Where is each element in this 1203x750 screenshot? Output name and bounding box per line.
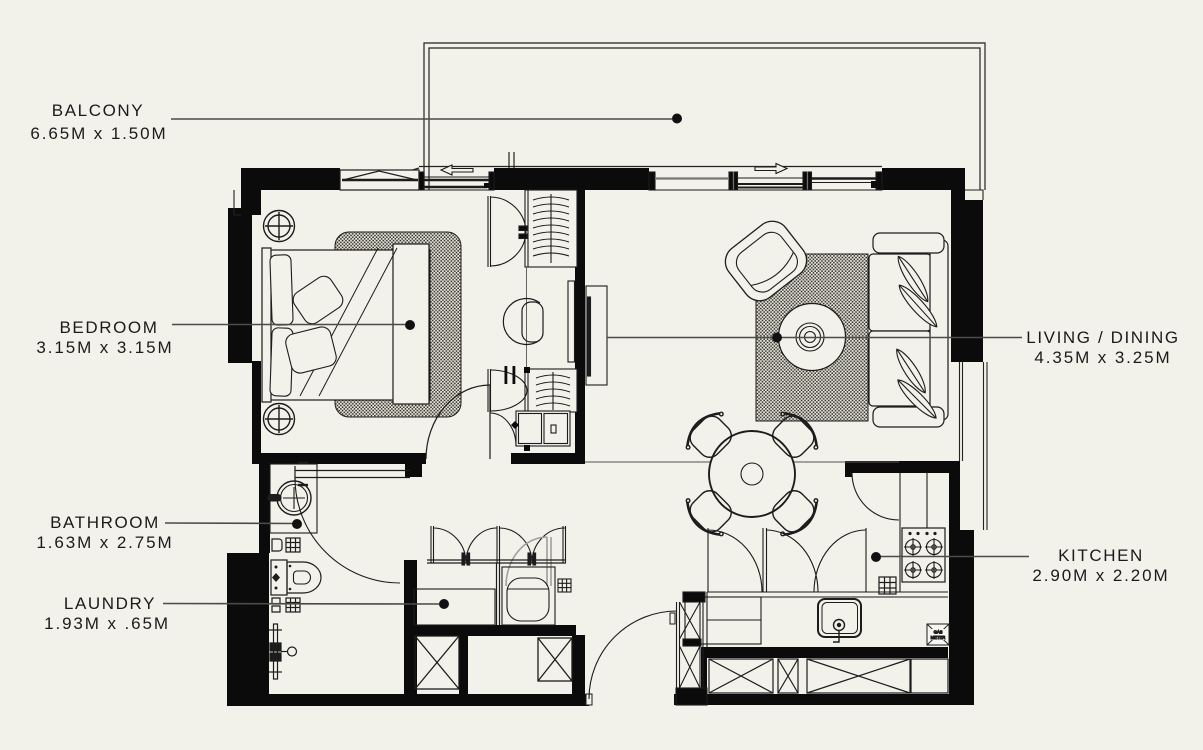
svg-text:LIVING / DINING: LIVING / DINING <box>1026 328 1179 347</box>
svg-text:METER: METER <box>931 635 946 640</box>
svg-text:GAS: GAS <box>934 630 943 635</box>
svg-text:6.65M x 1.50M: 6.65M x 1.50M <box>30 124 167 143</box>
svg-text:LAUNDRY: LAUNDRY <box>64 594 156 613</box>
svg-text:BEDROOM: BEDROOM <box>59 318 158 337</box>
svg-text:1.63M x 2.75M: 1.63M x 2.75M <box>36 533 173 552</box>
svg-text:BALCONY: BALCONY <box>52 101 144 120</box>
svg-text:3.15M x 3.15M: 3.15M x 3.15M <box>36 338 173 357</box>
svg-text:KITCHEN: KITCHEN <box>1058 546 1144 565</box>
svg-text:2.90M x 2.20M: 2.90M x 2.20M <box>1032 566 1169 585</box>
svg-text:4.35M x 3.25M: 4.35M x 3.25M <box>1034 348 1171 367</box>
svg-text:1.93M x .65M: 1.93M x .65M <box>44 614 170 633</box>
svg-text:BATHROOM: BATHROOM <box>50 513 160 532</box>
